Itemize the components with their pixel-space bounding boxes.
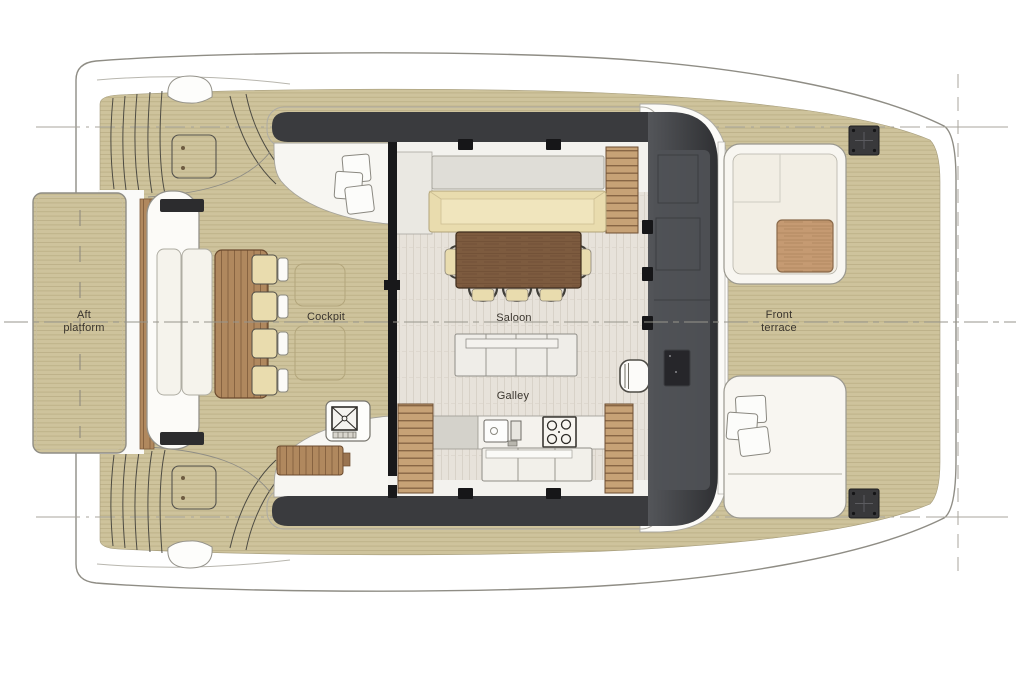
dark-band-bottom xyxy=(272,496,660,526)
bow-hatch-port xyxy=(849,126,879,155)
galley-label: Galley xyxy=(497,390,530,402)
galley-sink xyxy=(484,420,521,446)
bench-end-cap xyxy=(160,199,204,212)
terrace-aft-lounge xyxy=(724,376,846,518)
cockpit-chair xyxy=(252,366,288,395)
terrace-fwd-lounge xyxy=(724,144,846,284)
galley-stairs-starboard xyxy=(605,404,633,493)
saloon-side-cabinet xyxy=(396,152,432,234)
galley-stairs-port xyxy=(398,404,433,493)
aft-platform-label: Aft xyxy=(77,309,91,321)
dining-chair xyxy=(469,288,497,301)
dining-chair xyxy=(503,288,531,301)
bench-end-cap xyxy=(160,432,204,445)
galley-island xyxy=(455,334,577,376)
grill-module xyxy=(326,401,370,441)
helm-console-panel xyxy=(654,150,710,490)
deck-plan-stage: Aft platform Cockpit Saloon Galley Front… xyxy=(0,0,1024,683)
cockpit-chair xyxy=(252,329,288,358)
saloon-label: Saloon xyxy=(496,312,531,324)
terrace-table xyxy=(777,220,833,272)
dark-band-top xyxy=(272,112,660,142)
cockpit-chair xyxy=(252,255,288,284)
catamaran-deck-plan: Aft platform Cockpit Saloon Galley Front… xyxy=(0,0,1024,683)
saloon-sofa xyxy=(429,191,606,232)
front-terrace-label: Front xyxy=(766,309,793,321)
bow-hatch-starboard xyxy=(849,489,879,518)
galley-stove xyxy=(543,417,576,447)
aft-platform-label: platform xyxy=(63,322,104,334)
galley-counter-gray xyxy=(432,416,478,449)
electrical-panel xyxy=(664,350,690,386)
saloon-sideboard xyxy=(432,156,604,189)
desk-chair xyxy=(620,360,649,392)
cockpit-label: Cockpit xyxy=(307,311,345,323)
saloon-stairs-fwd xyxy=(606,147,638,233)
cockpit-chair xyxy=(252,292,288,321)
dining-chair xyxy=(537,288,565,301)
galley-lower-island xyxy=(482,448,592,481)
dining-table xyxy=(456,232,581,288)
front-terrace-label: terrace xyxy=(761,322,797,334)
teak-grate xyxy=(277,446,350,475)
